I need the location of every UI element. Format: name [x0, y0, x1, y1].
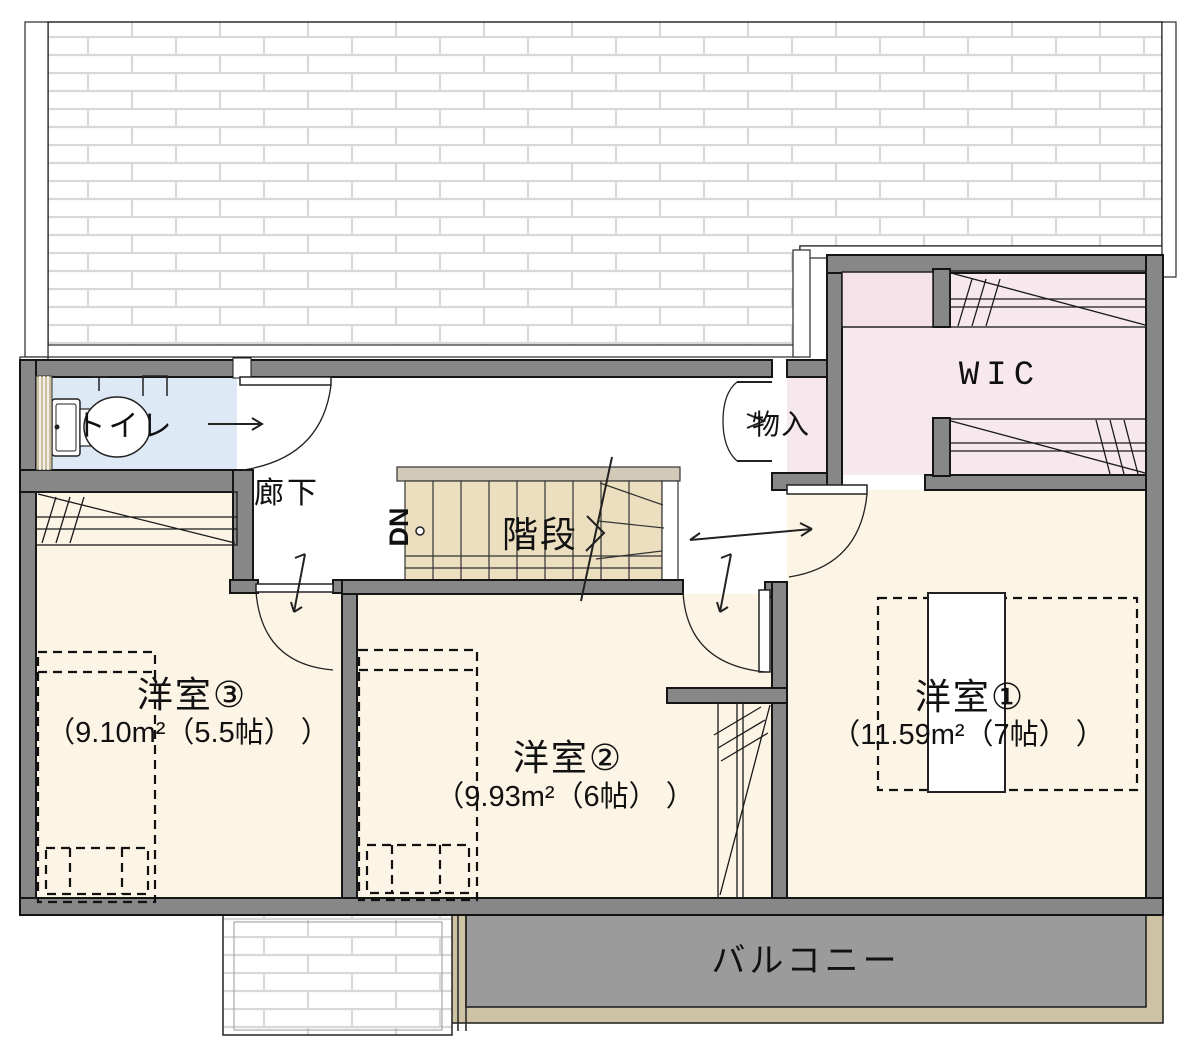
bedroom3-door-leaf: [256, 584, 333, 592]
stair-rail-band: [397, 467, 680, 481]
toilet-flush-dot: [55, 425, 60, 430]
wall-wic-bottom: [925, 475, 1146, 490]
wall-bedroom2-top: [342, 580, 683, 594]
roof-eave-trim: [48, 345, 800, 357]
wall-left: [20, 360, 36, 915]
toilet-door-leaf: [240, 377, 331, 385]
stairs-dn-label: DN: [384, 508, 414, 547]
roof-eave-trim: [793, 250, 810, 357]
bedroom2-door-leaf: [759, 590, 770, 672]
bedroom3-area: （9.10m²（5.5帖） ）: [46, 716, 330, 749]
bedroom2-label: 洋室②: [513, 737, 623, 778]
wall-toilet-bottom: [20, 470, 253, 492]
stair-rail-right: [662, 481, 678, 583]
wall-wic-top: [827, 255, 1163, 273]
roof-edge-right: [1162, 22, 1176, 277]
bedroom1-label: 洋室①: [915, 676, 1025, 717]
wic-label: WIC: [959, 357, 1041, 395]
wall-between-bed2-bed1: [772, 582, 787, 898]
wall-between-bed3-bed2: [342, 580, 357, 898]
bedroom1-area: （11.59m²（7帖） ）: [831, 718, 1104, 751]
wic-shelf-box: [842, 272, 933, 327]
wall-wic-closet-stub-top: [933, 269, 950, 327]
lower-roof: [223, 913, 466, 1035]
wall-bottom: [20, 898, 1163, 915]
hallway-label: 廊下: [254, 477, 320, 510]
bedroom2-area: （9.93m²（6帖） ）: [435, 780, 694, 813]
toilet-door-frame: [233, 358, 251, 378]
wall-wic-left: [827, 255, 842, 490]
wall-bedroom3-top-stub: [230, 580, 258, 593]
wall-bedroom2-closet-stub: [667, 688, 787, 703]
bedroom1-door-leaf: [787, 485, 867, 494]
lower-roof-hatch: [223, 913, 452, 1035]
wall-wic-closet-stub-bottom: [933, 418, 950, 476]
floor-plan-page: トイレ 廊下 階段 DN 物入 WIC 洋室① （11.59m²（7帖） ） 洋…: [0, 0, 1180, 1044]
storage-label: 物入: [752, 409, 810, 440]
wall-right: [1146, 255, 1163, 913]
stairs-label: 階段: [502, 514, 578, 555]
wall-corner-hall: [233, 470, 253, 593]
balcony-label: バルコニー: [711, 942, 900, 980]
toilet-label: トイレ: [76, 410, 175, 443]
roof-edge-left: [25, 22, 48, 357]
toilet-window-strip: [36, 376, 52, 470]
stair-start-marker: [416, 527, 424, 535]
wall-top: [20, 360, 772, 377]
floor-plan-drawing: トイレ 廊下 階段 DN 物入 WIC 洋室① （11.59m²（7帖） ） 洋…: [0, 0, 1180, 1044]
bedroom3-label: 洋室③: [137, 674, 247, 715]
